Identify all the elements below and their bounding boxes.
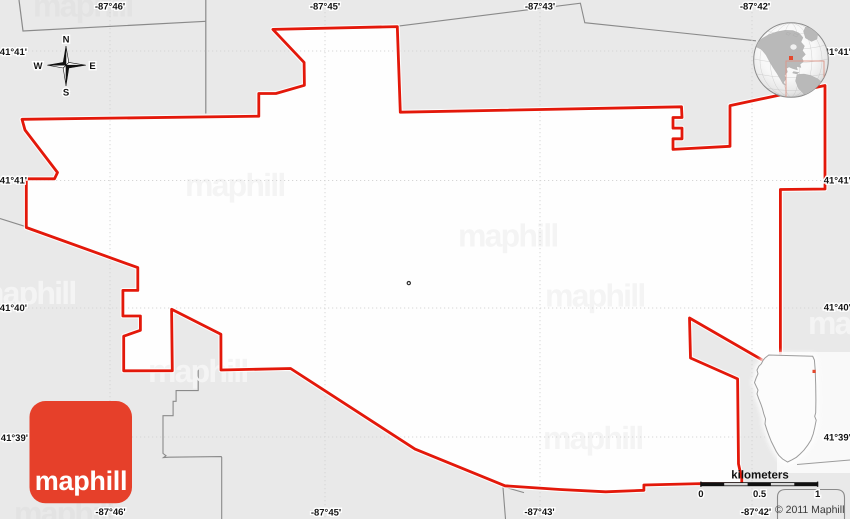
svg-text:-87°42': -87°42' [741,507,771,518]
svg-text:41°41': 41°41' [824,176,850,187]
svg-text:-87°46': -87°46' [95,2,125,13]
svg-text:41°41': 41°41' [0,47,27,58]
svg-text:41°39': 41°39' [1,433,28,444]
svg-text:-87°45': -87°45' [310,2,340,13]
svg-text:N: N [63,35,70,46]
svg-text:W: W [34,61,43,72]
svg-text:-87°46': -87°46' [95,507,125,518]
svg-text:maphill: maphill [35,466,127,496]
svg-text:maphill: maphill [545,278,644,314]
svg-text:maphill: maphill [543,420,642,456]
svg-text:0.5: 0.5 [753,489,767,500]
svg-text:0: 0 [698,489,703,500]
svg-text:maphill: maphill [458,218,557,254]
svg-text:41°39': 41°39' [824,433,850,444]
svg-text:1: 1 [815,489,821,500]
svg-text:41°40': 41°40' [824,303,850,314]
svg-text:E: E [89,61,95,72]
svg-text:41°41': 41°41' [0,176,27,187]
svg-text:-87°42': -87°42' [740,2,770,13]
svg-text:kilometers: kilometers [731,470,789,482]
svg-text:© 2011 Maphill: © 2011 Maphill [775,504,844,516]
svg-text:41°40': 41°40' [0,303,27,314]
svg-text:-87°43': -87°43' [525,2,555,13]
svg-text:-87°45': -87°45' [311,507,341,518]
svg-text:-87°43': -87°43' [524,507,554,518]
svg-text:S: S [63,88,69,99]
svg-text:maphill: maphill [185,167,284,203]
